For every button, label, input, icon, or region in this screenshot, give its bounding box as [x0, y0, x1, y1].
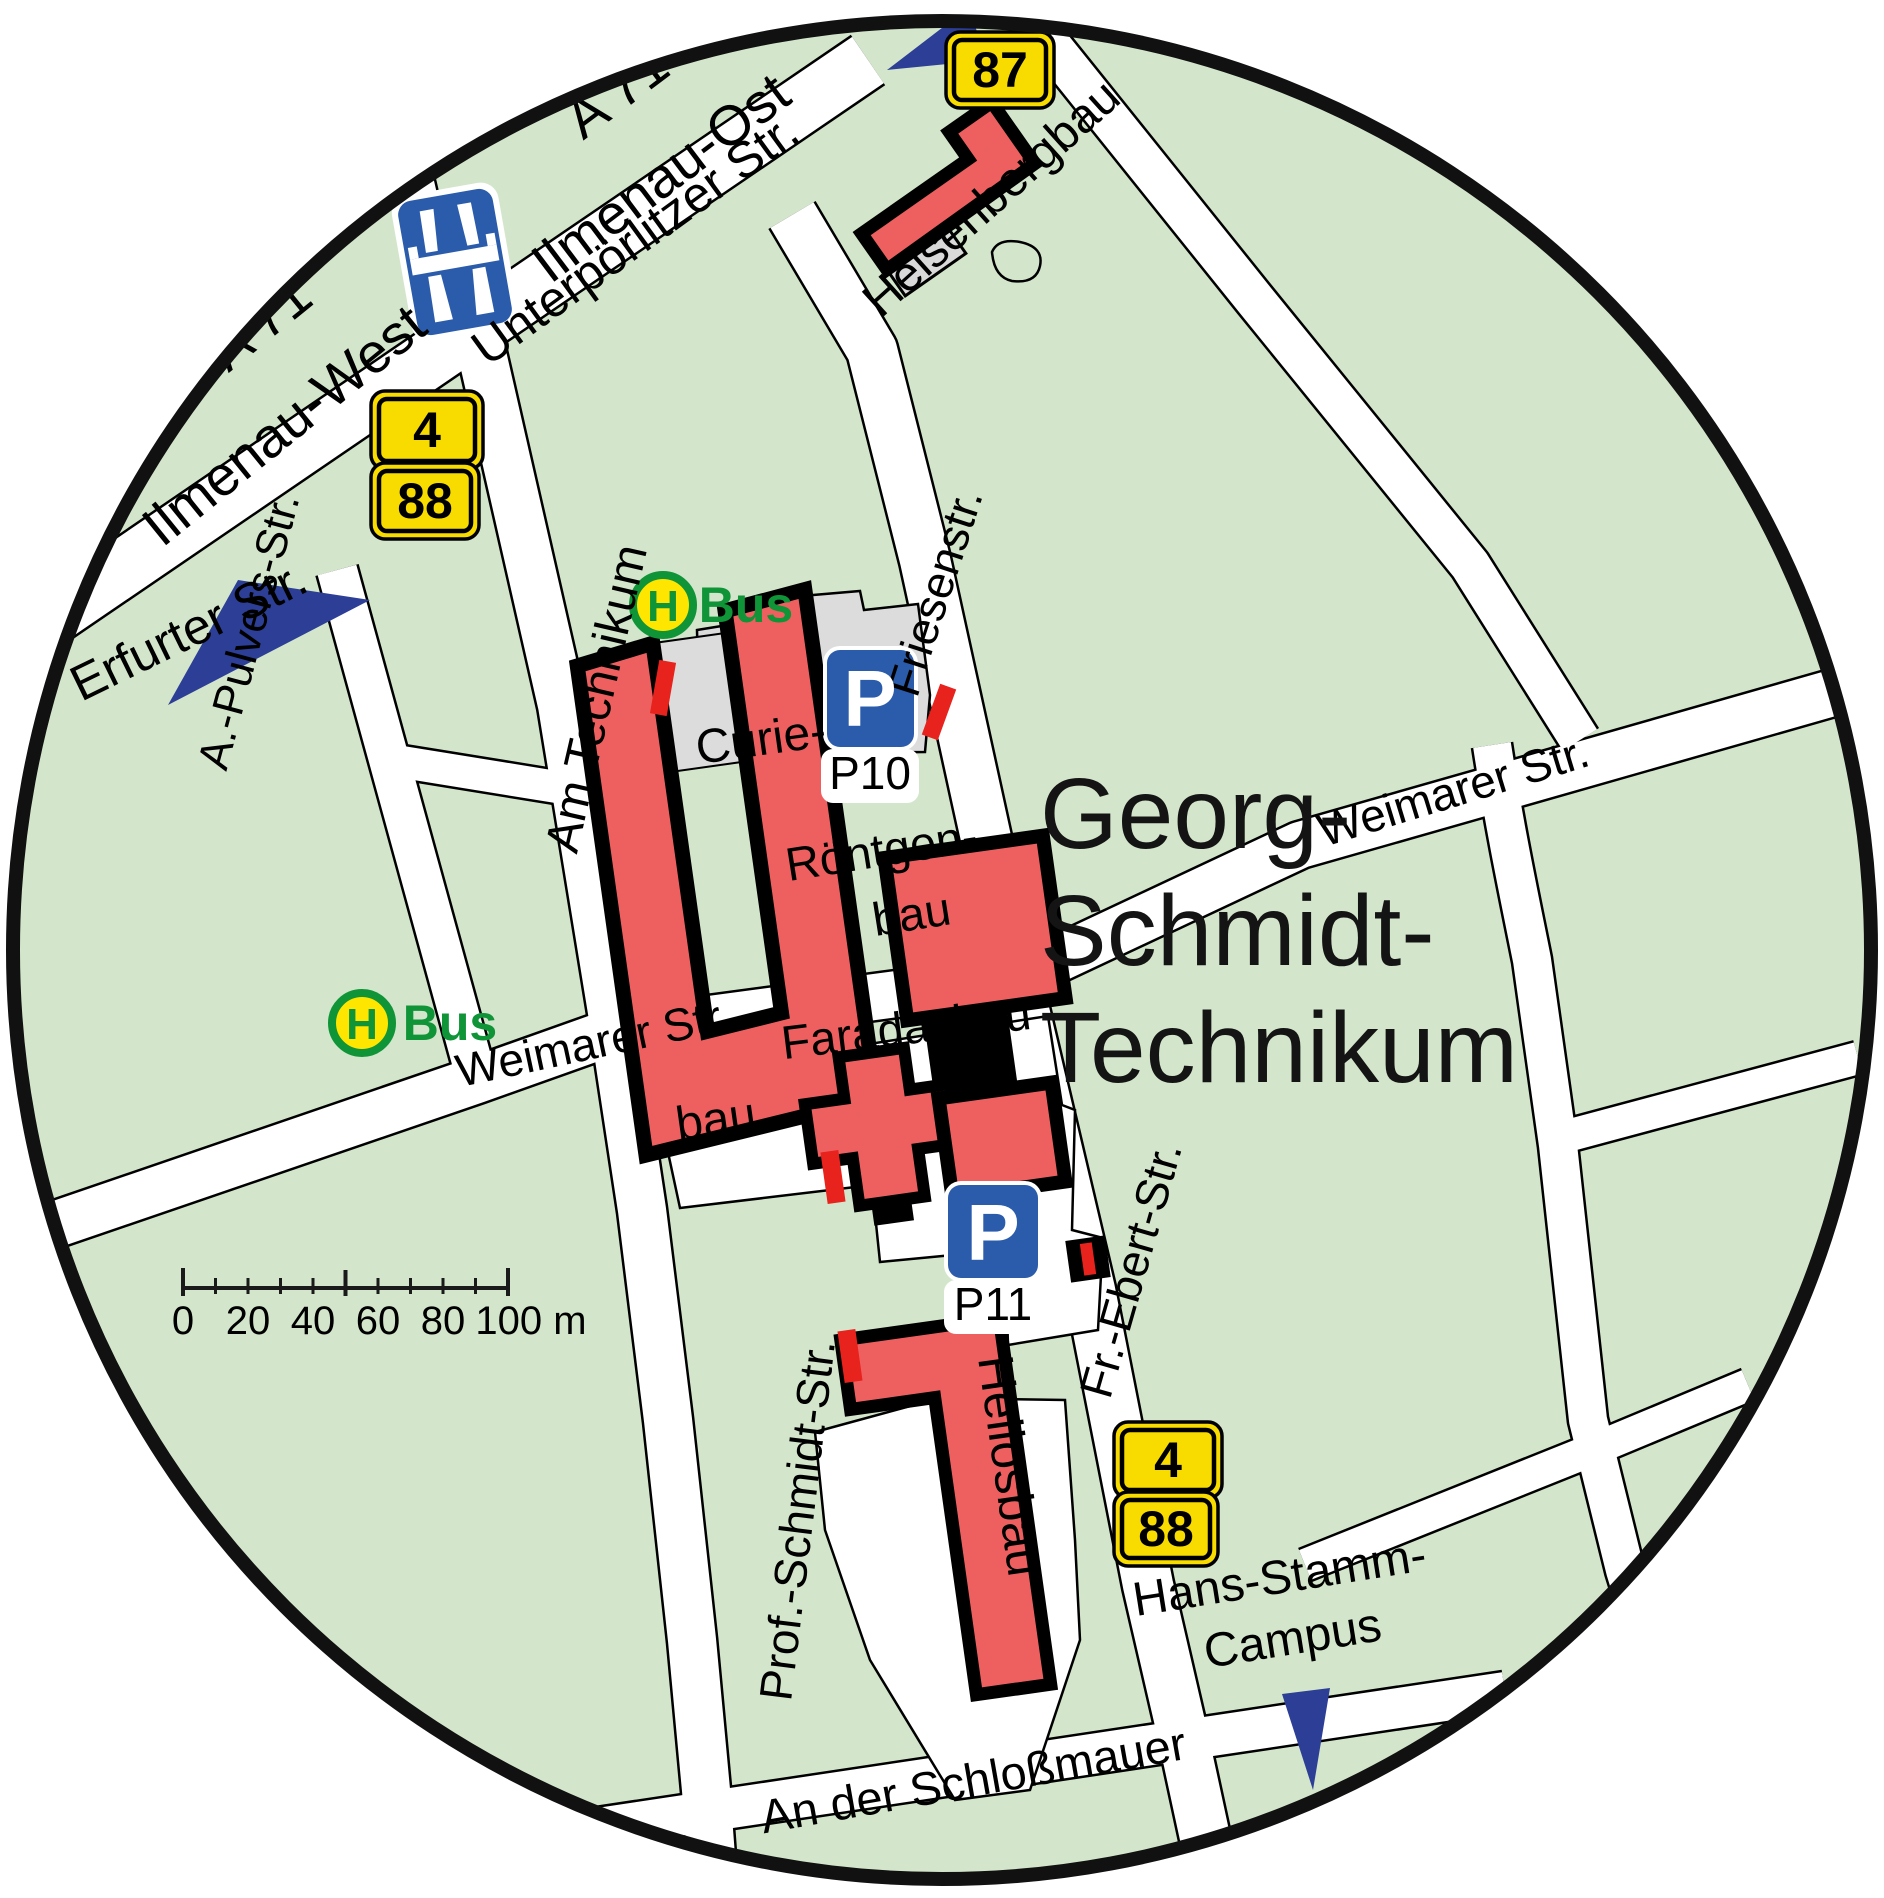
campus-map-figure: 48887488 020406080100 m A 71Ilmenau-OstA…: [0, 0, 1884, 1898]
route-badge-88-south-number: 88: [1138, 1501, 1194, 1557]
scale-label-3: 60: [356, 1299, 401, 1343]
parking-p10-label: P10: [829, 747, 911, 799]
parking-p10-icon: P: [843, 654, 896, 743]
route-badge-4-south-number: 4: [1154, 1432, 1182, 1488]
route-badge-88-north: 88: [371, 463, 479, 539]
title-line-1: Georg-: [1040, 758, 1351, 870]
route-badge-4-north: 4: [371, 391, 483, 469]
scale-label-2: 40: [291, 1299, 336, 1343]
scale-label-0: 0: [172, 1299, 194, 1343]
route-badge-88-north-number: 88: [397, 473, 453, 529]
parking-p11-icon: P: [966, 1188, 1019, 1277]
scale-label-1: 20: [226, 1299, 271, 1343]
label-curiebau-2: bau: [672, 1088, 759, 1152]
scale-label-5: 100 m: [475, 1299, 586, 1343]
parking-p11-label: P11: [954, 1278, 1032, 1330]
scale-bar-labels: 020406080100 m: [172, 1299, 587, 1343]
bus-stop-west-label: Bus: [403, 995, 497, 1051]
bus-stop-north-h-icon: H: [647, 582, 679, 631]
bus-stop-west-h-icon: H: [346, 1000, 378, 1049]
route-badge-4-north-number: 4: [413, 402, 441, 458]
route-badge-88-south: 88: [1114, 1492, 1218, 1566]
bus-stop-north-label: Bus: [699, 577, 793, 633]
scale-label-4: 80: [421, 1299, 466, 1343]
route-badge-87-number: 87: [972, 42, 1028, 98]
title-line-3: Technikum: [1040, 992, 1518, 1104]
map-svg: 48887488 020406080100 m A 71Ilmenau-OstA…: [0, 0, 1884, 1898]
route-badge-87: 87: [946, 32, 1054, 108]
route-badge-4-south: 4: [1114, 1422, 1222, 1498]
title-line-2: Schmidt-: [1040, 875, 1435, 987]
